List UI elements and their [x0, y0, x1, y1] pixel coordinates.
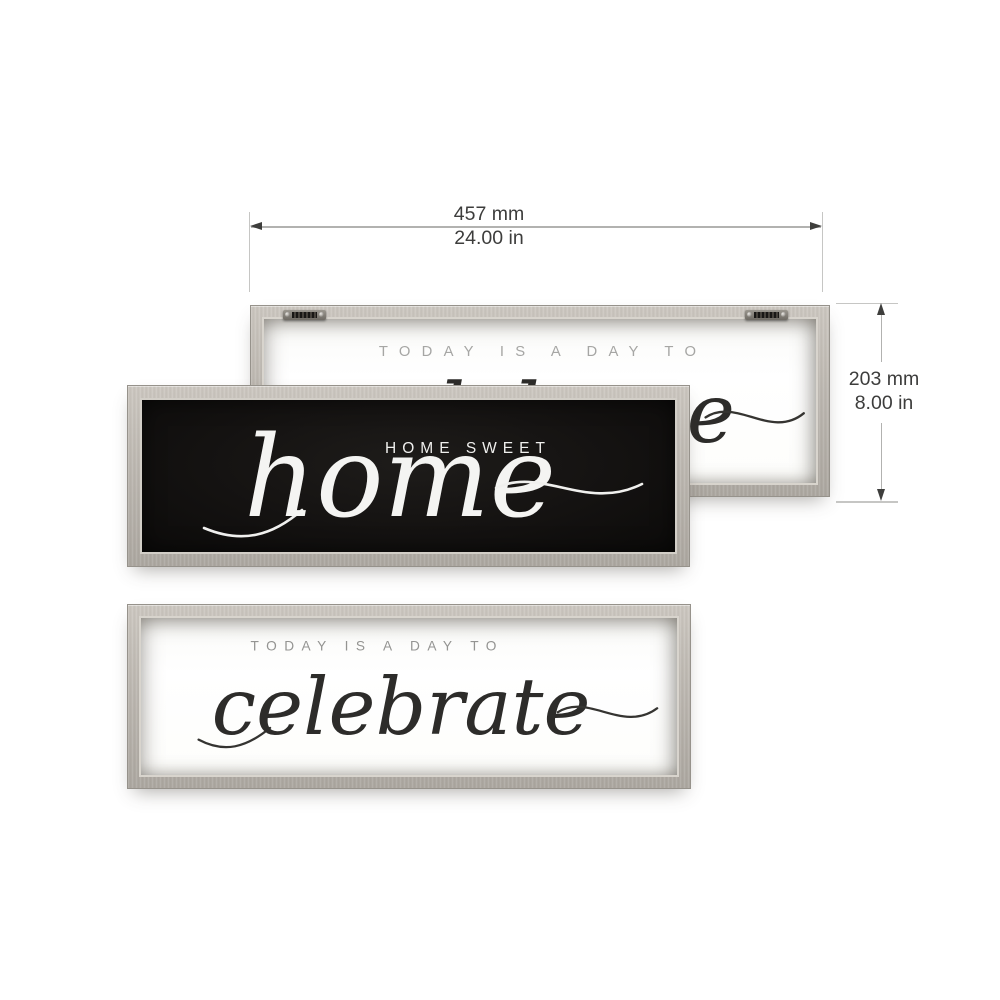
- height-measure-line-bottom: [881, 423, 883, 491]
- celebrate-sign-front-artwork: TODAY IS A DAY TO celebrate: [141, 618, 677, 775]
- screw-icon: [781, 312, 786, 317]
- sawtooth-hanger-left: [283, 310, 326, 320]
- caption-text: TODAY IS A DAY TO: [379, 344, 707, 360]
- sawtooth-bar: [754, 312, 779, 318]
- celebrate-artwork-svg: TODAY IS A DAY TO celebrate: [141, 618, 677, 775]
- width-dimension-label: 457 mm 24.00 in: [454, 202, 524, 250]
- screw-icon: [285, 312, 290, 317]
- height-imperial: 8.00 in: [849, 391, 919, 415]
- arrowhead-up-icon: [877, 303, 885, 315]
- home-sweet-home-artwork: HOME SWEET home: [142, 400, 675, 552]
- width-metric: 457 mm: [454, 202, 524, 226]
- home-artwork-svg: HOME SWEET home: [142, 400, 675, 552]
- arrowhead-down-icon: [877, 489, 885, 501]
- height-dimension-label: 203 mm 8.00 in: [849, 367, 919, 415]
- height-extension-line-bottom: [836, 501, 898, 503]
- sawtooth-bar: [292, 312, 317, 318]
- width-imperial: 24.00 in: [454, 226, 524, 250]
- screw-icon: [319, 312, 324, 317]
- product-dimension-diagram: 457 mm 24.00 in TODAY IS A DAY TO celebr…: [0, 0, 1000, 1000]
- home-sweet-home-sign-frame: HOME SWEET home: [127, 385, 690, 567]
- script-text: home: [244, 413, 556, 543]
- height-extension-line-top: [836, 303, 898, 305]
- caption-text: TODAY IS A DAY TO: [251, 638, 504, 653]
- script-text: celebrate: [212, 661, 591, 752]
- height-metric: 203 mm: [849, 367, 919, 391]
- arrowhead-left-icon: [250, 222, 262, 230]
- screw-icon: [747, 312, 752, 317]
- width-measure-line: [251, 226, 821, 228]
- sawtooth-hanger-right: [745, 310, 788, 320]
- celebrate-sign-front-frame: TODAY IS A DAY TO celebrate: [127, 604, 691, 789]
- height-measure-line-top: [881, 315, 883, 362]
- arrowhead-right-icon: [810, 222, 822, 230]
